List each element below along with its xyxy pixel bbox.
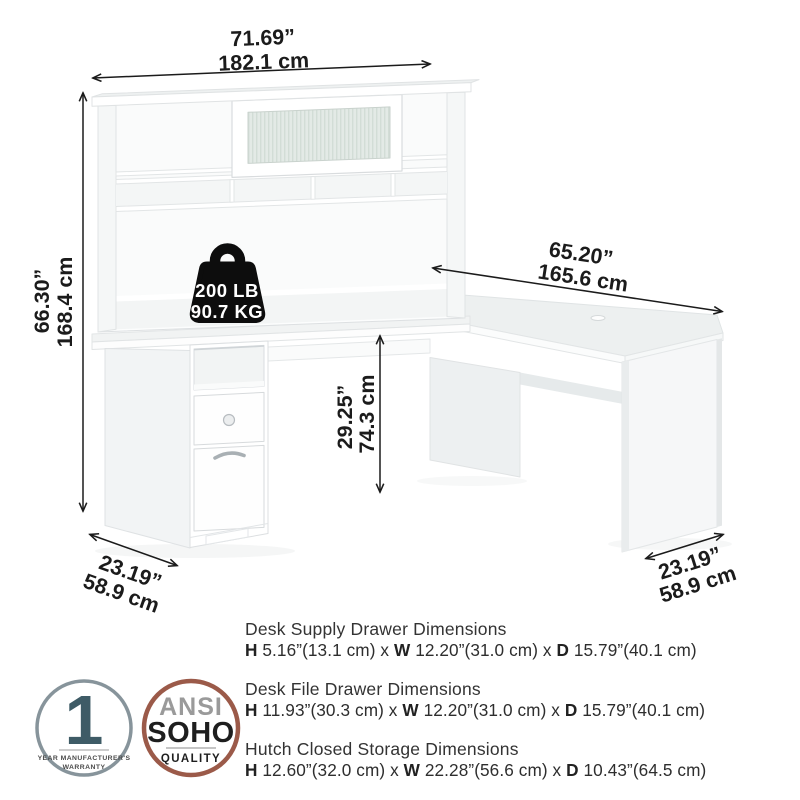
w-value: 12.20”(31.0 cm) x — [410, 640, 556, 660]
spec-title: Hutch Closed Storage Dimensions — [245, 739, 715, 760]
desk-main — [92, 316, 470, 548]
weight-kg-label: 90.7 KG — [191, 301, 263, 322]
w-label: W — [402, 700, 418, 720]
return-end-panel — [622, 340, 717, 553]
hutch-left-panel — [98, 105, 116, 332]
end-panel-edge-shade — [622, 360, 629, 552]
frosted-glass — [248, 107, 390, 163]
return-underside-band — [520, 373, 622, 404]
h-label: H — [245, 700, 258, 720]
shadow-corner — [417, 476, 527, 486]
cubby-divider — [311, 176, 315, 199]
width-cm-label: 182.1 cm — [218, 48, 310, 75]
w-label: W — [394, 640, 410, 660]
modesty-panel — [268, 339, 430, 361]
desk-return — [428, 294, 723, 552]
spec-value: H 11.93”(30.3 cm) x W 12.20”(31.0 cm) x … — [245, 700, 715, 721]
h-value: 11.93”(30.3 cm) x — [258, 700, 403, 720]
desk-height-cm-label: 74.3 cm — [355, 375, 379, 454]
spec-file-drawer: Desk File Drawer Dimensions H 11.93”(30.… — [245, 679, 715, 721]
d-value: 15.79”(40.1 cm) — [569, 640, 697, 660]
spec-title: Desk Supply Drawer Dimensions — [245, 619, 715, 640]
weight-lb-label: 200 LB — [195, 280, 259, 301]
corner-leg-panel — [430, 358, 520, 478]
w-label: W — [404, 760, 420, 780]
d-label: D — [565, 700, 578, 720]
height-cm-label: 168.4 cm — [53, 257, 77, 348]
warranty-badge: 1 YEAR MANUFACTURER'S WARRANTY — [37, 681, 131, 775]
h-value: 12.60”(32.0 cm) x — [258, 760, 404, 780]
spec-value: H 12.60”(32.0 cm) x W 22.28”(56.6 cm) x … — [245, 760, 715, 781]
d-value: 10.43”(64.5 cm) — [579, 760, 707, 780]
height-inches-label: 66.30” — [30, 269, 54, 334]
hutch — [92, 80, 479, 332]
desk-height-inches-label: 29.25” — [333, 385, 357, 450]
d-label: D — [556, 640, 569, 660]
spec-hutch-storage: Hutch Closed Storage Dimensions H 12.60”… — [245, 739, 715, 781]
w-value: 22.28”(56.6 cm) x — [420, 760, 566, 780]
quality-badge: ANSI SOHO QUALITY — [144, 681, 238, 775]
d-label: D — [566, 760, 579, 780]
spec-value: H 5.16”(13.1 cm) x W 12.20”(31.0 cm) x D… — [245, 640, 715, 661]
drawer-pedestal — [105, 341, 268, 548]
warranty-number: 1 — [65, 681, 104, 759]
grommet-hole — [591, 316, 605, 321]
quality-text: QUALITY — [161, 753, 221, 765]
h-value: 5.16”(13.1 cm) x — [258, 640, 394, 660]
quality-soho: SOHO — [147, 717, 234, 749]
end-panel-side-face — [717, 338, 722, 527]
warranty-line1: YEAR MANUFACTURER'S — [38, 755, 131, 762]
width-inches-label: 71.69” — [230, 25, 295, 51]
drawer-knob — [224, 415, 235, 426]
hutch-right-panel — [447, 92, 465, 318]
file-drawer — [194, 445, 264, 531]
pedestal-side-panel — [105, 349, 190, 549]
spec-supply-drawer: Desk Supply Drawer Dimensions H 5.16”(13… — [245, 619, 715, 661]
w-value: 12.20”(31.0 cm) x — [419, 700, 565, 720]
h-label: H — [245, 640, 258, 660]
cubby-divider — [230, 180, 234, 203]
warranty-line2: WARRANTY — [63, 764, 106, 771]
cubby-divider — [391, 173, 395, 196]
spec-title: Desk File Drawer Dimensions — [245, 679, 715, 700]
d-value: 15.79”(40.1 cm) — [577, 700, 705, 720]
h-label: H — [245, 760, 258, 780]
